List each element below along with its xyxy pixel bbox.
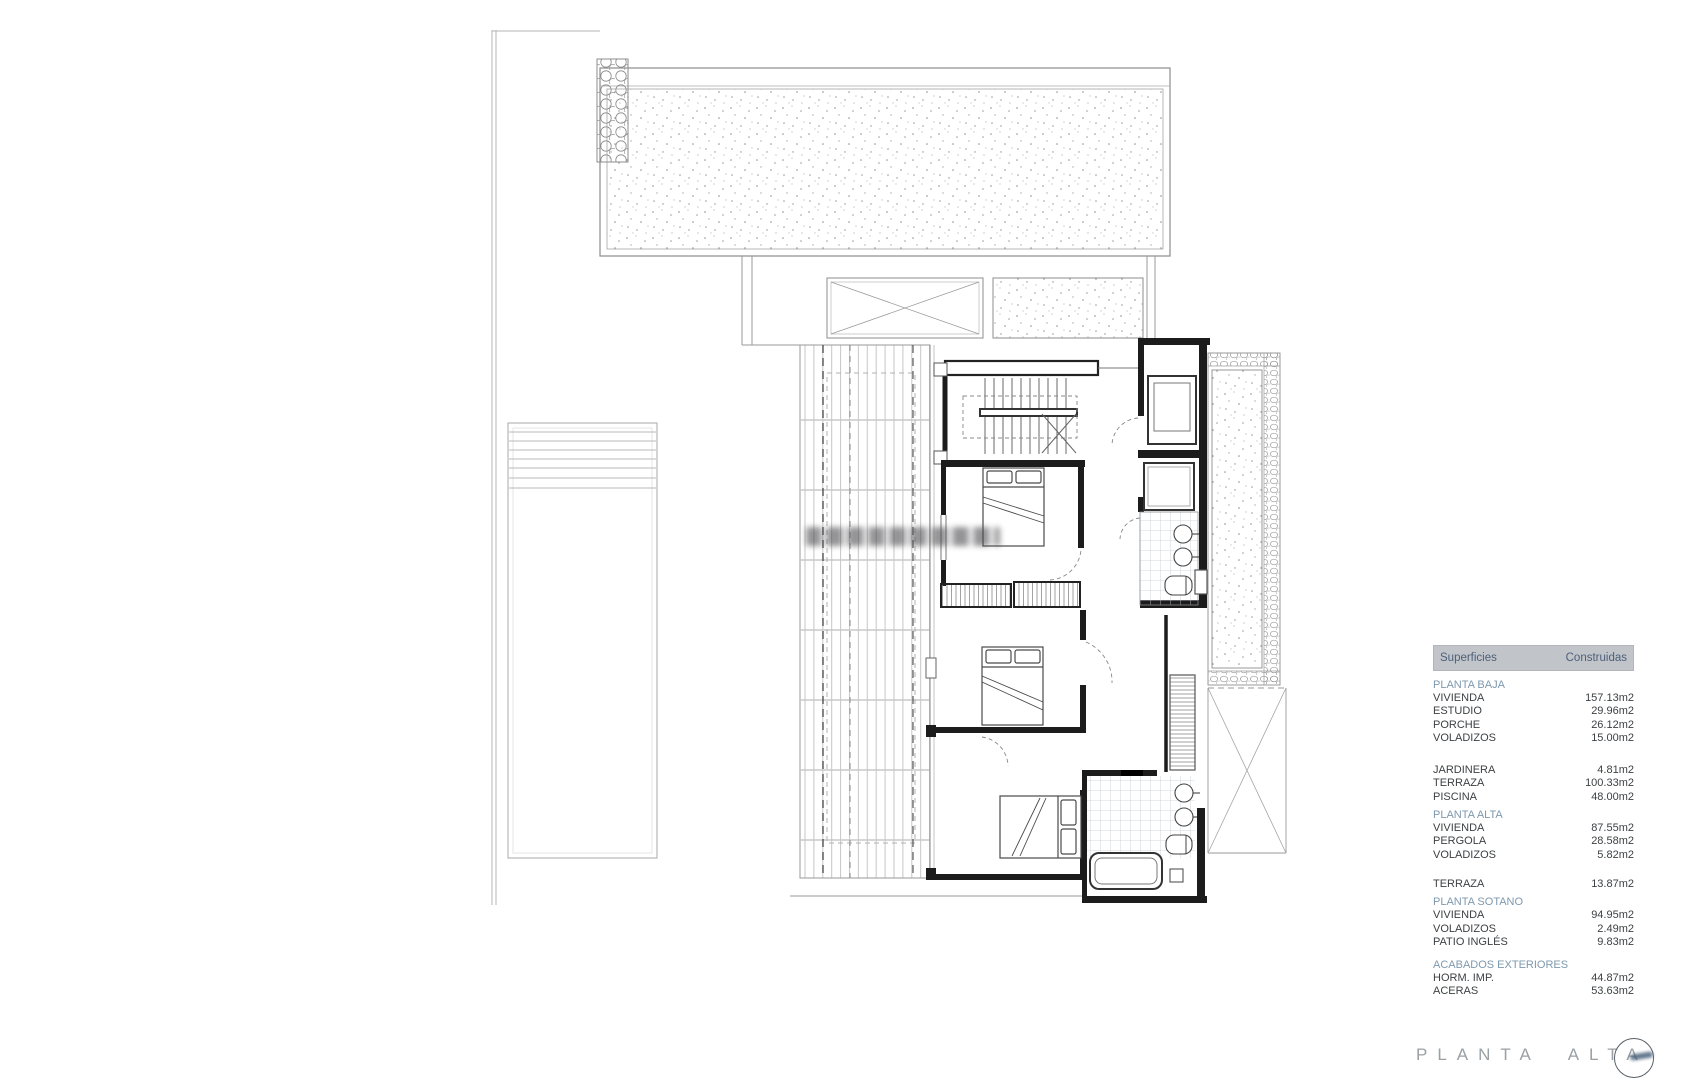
bed-3 bbox=[1000, 796, 1081, 858]
bathroom-upper bbox=[1120, 512, 1199, 605]
table-section-acabados: ACABADOS EXTERIORES HORM. IMP. 44.87m2 A… bbox=[1433, 959, 1634, 999]
pool bbox=[508, 423, 657, 858]
drain-square bbox=[1170, 869, 1183, 882]
door-arc-bedroom-1 bbox=[1050, 550, 1081, 580]
plan-sheet: Superficies Construidas PLANTA BAJA VIVI… bbox=[0, 0, 1700, 1080]
table-section-exterior-baja: JARDINERA 4.81m2 TERRAZA 100.33m2 PISCIN… bbox=[1433, 764, 1634, 804]
table-row: PORCHE 26.12m2 bbox=[1433, 719, 1634, 732]
door-arc-bedroom-3 bbox=[982, 737, 1008, 766]
pebble-strip bbox=[597, 59, 628, 162]
right-void-box bbox=[1208, 688, 1286, 853]
bed-2 bbox=[982, 647, 1043, 725]
table-row: ACERAS 53.63m2 bbox=[1433, 985, 1634, 998]
sink-icon bbox=[1174, 548, 1192, 566]
areas-table: Superficies Construidas PLANTA BAJA VIVI… bbox=[1433, 645, 1634, 999]
wardrobe-right bbox=[1014, 582, 1080, 607]
closet-box bbox=[1144, 463, 1194, 510]
col-superficies: Superficies bbox=[1440, 652, 1497, 664]
toilet-icon bbox=[1166, 835, 1192, 854]
section-title: PLANTA SOTANO bbox=[1433, 896, 1634, 909]
door-arc-bedroom-2 bbox=[1086, 642, 1112, 683]
table-row: PERGOLA 28.58m2 bbox=[1433, 835, 1634, 848]
sink-icon bbox=[1175, 784, 1193, 802]
bedroom-2 bbox=[926, 610, 1112, 733]
sheet-title: PLANTA ALTA bbox=[1416, 1045, 1648, 1065]
table-row: PATIO INGLÉS 9.83m2 bbox=[1433, 936, 1634, 949]
bedroom-3 bbox=[926, 725, 1086, 880]
door-arc-wing bbox=[1112, 418, 1138, 445]
skylight-void-box bbox=[827, 278, 983, 338]
section-title: PLANTA ALTA bbox=[1433, 809, 1634, 822]
staircase bbox=[934, 361, 1138, 464]
section-title: PLANTA BAJA bbox=[1433, 679, 1634, 692]
right-terrace bbox=[1208, 353, 1280, 685]
table-row: JARDINERA 4.81m2 bbox=[1433, 764, 1634, 777]
table-row: ESTUDIO 29.96m2 bbox=[1433, 705, 1634, 718]
stamp-mark bbox=[1630, 1051, 1654, 1061]
stippled-box bbox=[993, 278, 1143, 338]
table-section-planta-baja: PLANTA BAJA VIVIENDA 157.13m2 ESTUDIO 29… bbox=[1433, 679, 1634, 745]
table-section-planta-alta: PLANTA ALTA VIVIENDA 87.55m2 PERGOLA 28.… bbox=[1433, 809, 1634, 862]
table-row: VIVIENDA 157.13m2 bbox=[1433, 692, 1634, 705]
table-row: TERRAZA 13.87m2 bbox=[1433, 878, 1634, 891]
table-row: VIVIENDA 94.95m2 bbox=[1433, 909, 1634, 922]
table-row: TERRAZA 100.33m2 bbox=[1433, 777, 1634, 790]
section-title: ACABADOS EXTERIORES bbox=[1433, 959, 1634, 972]
right-wing bbox=[1112, 338, 1210, 608]
table-section-exterior-alta: TERRAZA 13.87m2 bbox=[1433, 878, 1634, 891]
bathroom-lower bbox=[1082, 770, 1207, 903]
toilet-icon bbox=[1165, 576, 1192, 595]
wardrobe-left bbox=[941, 584, 1011, 607]
col-construidas: Construidas bbox=[1566, 652, 1627, 664]
window-sill bbox=[926, 658, 936, 678]
bathtub-icon bbox=[1090, 853, 1162, 889]
top-terrace bbox=[597, 59, 1170, 256]
table-row: HORM. IMP. 44.87m2 bbox=[1433, 972, 1634, 985]
architect-stamp-icon bbox=[1614, 1038, 1654, 1078]
sink-icon bbox=[1175, 808, 1193, 826]
sink-icon bbox=[1174, 525, 1192, 543]
areas-table-header: Superficies Construidas bbox=[1433, 645, 1634, 671]
table-row: VIVIENDA 87.55m2 bbox=[1433, 822, 1634, 835]
table-row: PISCINA 48.00m2 bbox=[1433, 791, 1634, 804]
watermark-blur bbox=[806, 527, 1000, 546]
table-row: VOLADIZOS 2.49m2 bbox=[1433, 923, 1634, 936]
table-section-planta-sotano: PLANTA SOTANO VIVIENDA 94.95m2 VOLADIZOS… bbox=[1433, 896, 1634, 949]
table-row: VOLADIZOS 5.82m2 bbox=[1433, 849, 1634, 862]
shower-unit bbox=[1148, 376, 1196, 444]
table-row: VOLADIZOS 15.00m2 bbox=[1433, 732, 1634, 745]
